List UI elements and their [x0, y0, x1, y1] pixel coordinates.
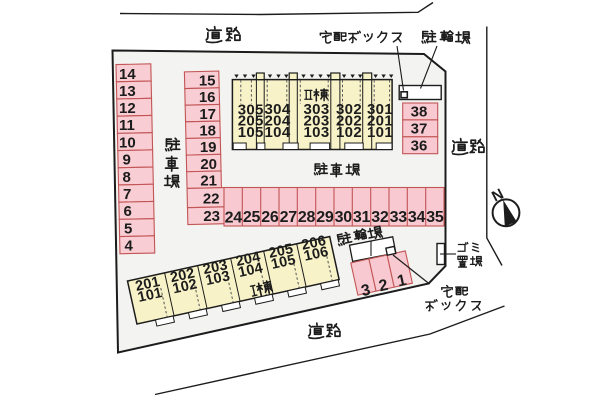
- svg-text:14: 14: [119, 66, 136, 83]
- svg-text:5: 5: [124, 220, 132, 237]
- svg-text:34: 34: [408, 209, 426, 226]
- svg-text:30: 30: [335, 209, 353, 226]
- svg-text:17: 17: [199, 106, 216, 123]
- svg-text:102: 102: [336, 124, 362, 141]
- svg-text:25: 25: [243, 209, 261, 226]
- svg-text:101: 101: [367, 124, 393, 141]
- svg-text:8: 8: [123, 169, 131, 186]
- svg-text:27: 27: [280, 209, 298, 226]
- svg-text:13: 13: [119, 83, 136, 100]
- svg-text:20: 20: [200, 156, 217, 173]
- svg-text:105: 105: [238, 124, 264, 141]
- svg-text:12: 12: [119, 100, 136, 117]
- svg-text:26: 26: [261, 209, 279, 226]
- svg-text:23: 23: [203, 208, 220, 225]
- svg-text:9: 9: [123, 152, 131, 169]
- svg-text:16: 16: [199, 89, 216, 106]
- svg-text:35: 35: [426, 209, 444, 226]
- svg-text:4: 4: [125, 238, 134, 255]
- svg-text:22: 22: [203, 191, 220, 208]
- svg-text:36: 36: [411, 137, 428, 154]
- svg-text:11: 11: [119, 117, 135, 134]
- svg-text:31: 31: [353, 209, 371, 226]
- svg-text:103: 103: [304, 124, 330, 141]
- svg-text:18: 18: [199, 123, 216, 140]
- svg-text:104: 104: [265, 124, 291, 141]
- svg-text:19: 19: [200, 139, 217, 156]
- svg-text:33: 33: [390, 209, 408, 226]
- svg-text:28: 28: [298, 209, 316, 226]
- svg-text:6: 6: [124, 203, 132, 220]
- svg-text:37: 37: [411, 120, 428, 137]
- svg-text:29: 29: [316, 209, 334, 226]
- svg-text:24: 24: [225, 209, 243, 226]
- svg-text:15: 15: [199, 73, 216, 90]
- svg-text:38: 38: [411, 104, 428, 121]
- svg-text:21: 21: [200, 173, 217, 190]
- svg-text:7: 7: [123, 186, 131, 203]
- svg-text:10: 10: [119, 134, 136, 151]
- svg-text:32: 32: [371, 209, 389, 226]
